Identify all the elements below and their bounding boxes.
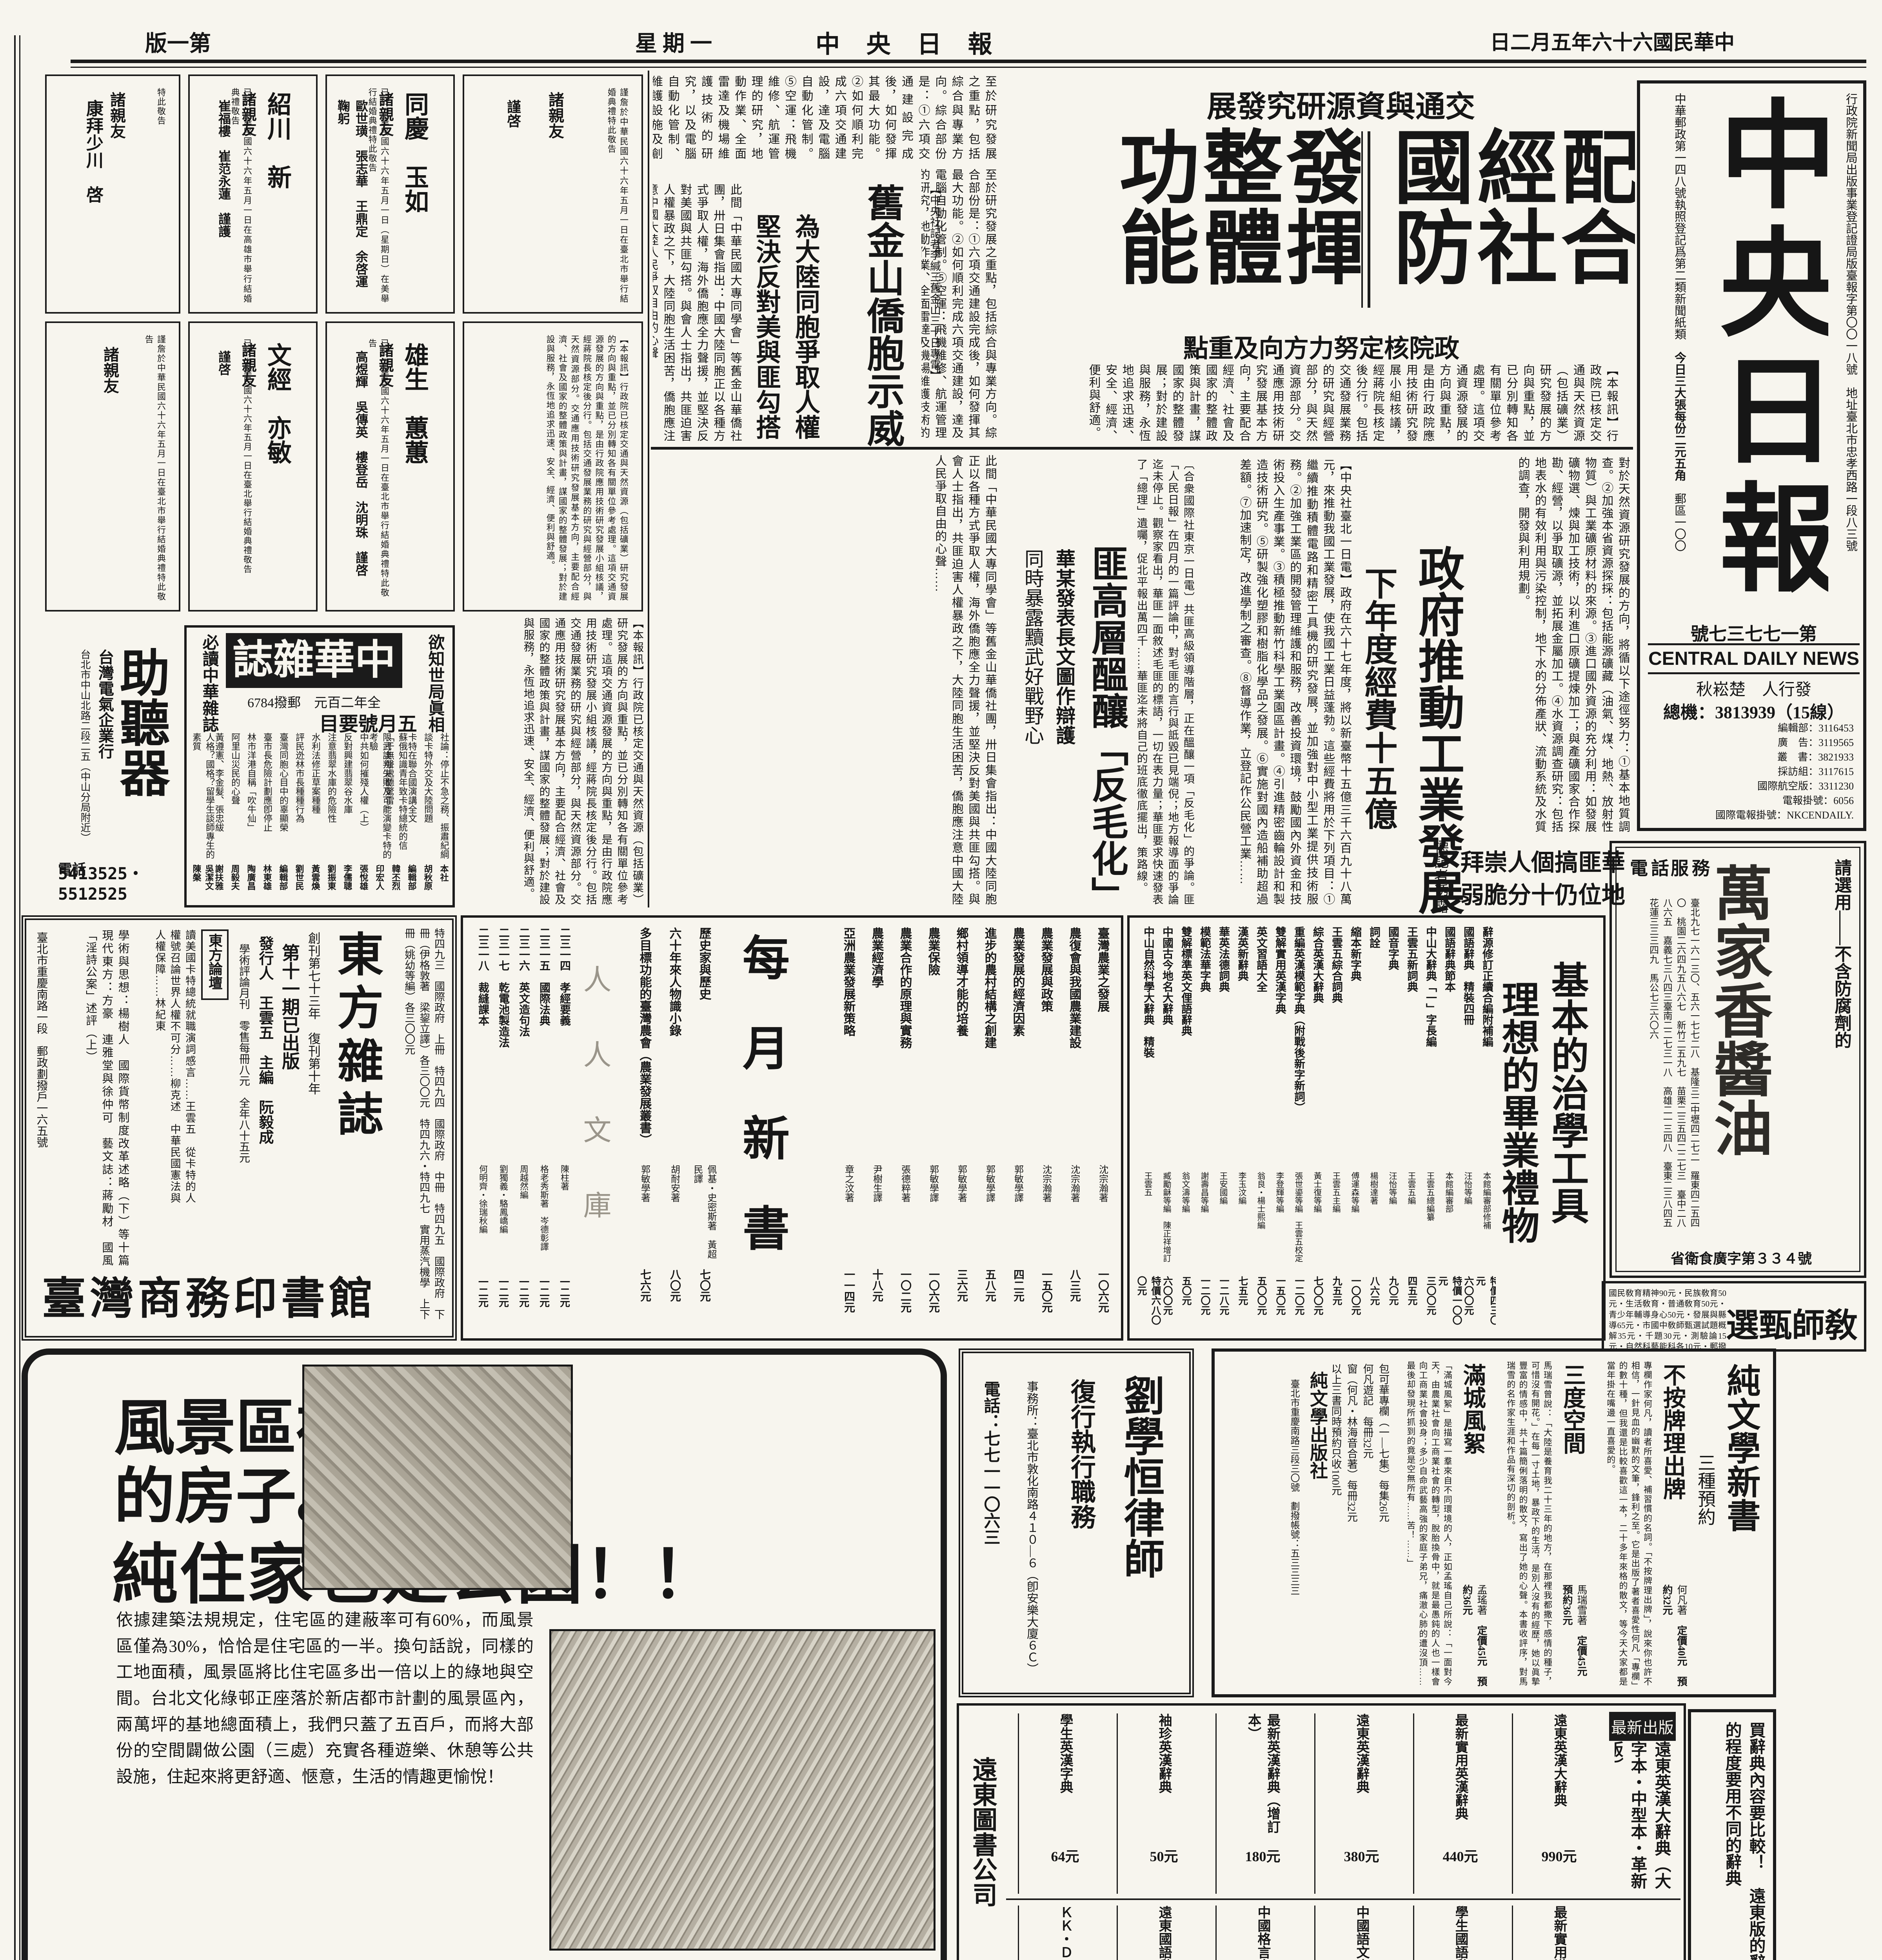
oriental-forum-label: 東方論壇 [201,929,229,1000]
wenku-author: 格老秀斯著 岑德彰譯 [538,1165,550,1274]
book-title: 鄉村領導才能的培養 [953,927,970,1162]
dict-author: 王雲五編 [1406,1172,1417,1274]
dict-title: 雙解標準英文俚語辭典 [1178,926,1194,1169]
fareast-book-title: 最新英漢辭典（增訂本） [1244,1713,1282,1843]
children-photo [302,1365,573,1590]
wenku-price: 一二元 [496,1277,510,1324]
dict-author: 李玉汶編 [1236,1172,1248,1274]
book-author: 沈宗瀚著 [1096,1165,1110,1267]
masthead-english: CENTRAL DAILY NEWS [1644,648,1864,670]
zh-article-title: 社論：停止不急之務、振肅紀綱 [437,733,451,862]
wedding4-detail: 謹詹於中華民國六十六年五月一日在臺北市舉行結婚典禮特此敬告 [571,88,630,303]
zh-article: 黃遵憲、李金髮、張忠紱 謝扶雅 [211,733,226,904]
dict-title: 辭源修訂正續合編附補編 [1479,926,1495,1169]
book-author: 章之汶著 [842,1165,856,1267]
dicts-item-list: 辭源修訂正續合編附補編 本館編審部修補 特價四三〇元 國語辭典 精裝四冊 汪怡等… [1135,926,1496,1330]
dict-item: 重編英漢模範字典（附戰後新字新詞） 張世鎏等編 王雲五校定 一二〇元 [1290,926,1308,1330]
book-item: 六十年來人物識小錄 胡耐安著 八〇元 [661,927,687,1327]
service-entry: 五八六七 新竹二五九七 苗栗二三 [1675,973,1685,1124]
mao-headline: 匪高層醞釀「反毛化」 [1082,545,1133,909]
oriental-title: 東方雜誌 [331,930,389,1181]
dict-title: 英文習語大全 [1253,926,1269,1169]
wedding5-relatives: 諸親友 [374,343,396,460]
mao-kicker-1: 華某發表長文圖作辯護 [1051,549,1078,898]
top-story-headline-left: 發揮整體功能 [1106,125,1361,314]
wenku-title: 二三一六 英文造句法 [516,927,531,1162]
chun-book3-author: 孟瑤著 [1476,1584,1487,1615]
book-title: 六十年來人物識小錄 [666,927,683,1162]
book-item: 農業經濟學 尹樹生譯 十八元 [865,927,889,1327]
fareast-book: 最新實用漢英辭典 430元 [1512,1906,1605,1960]
oriental-forum-list: 讀美國卡特總統就職演詞感言……王雲五 從卡特的人權號召論世界人權不可分……柳克述… [134,929,197,1204]
book-title: 進步的農村結構之創建 [981,927,999,1162]
book-price: 五八元 [982,1269,997,1324]
book-author: 佩基・史密斯著 黃超民譯 [690,1165,717,1267]
masthead-phone-list: 編輯部：3116453廣 告：3119565叢 書：3821933採訪組：311… [1650,721,1854,822]
classified8-text: 【本報訊】行政院已核定交通與天然資源（包括礦業）研究發展的方向與重點，並已分別轉… [477,335,630,601]
book-author: 張德粹著 [898,1165,912,1267]
zh-article-author: 劉振東 [325,864,338,902]
dict-item: 詞詮 楊樹達著 八六元 [1365,926,1383,1330]
dict-item: 華英法德詞典 王安國編 一二八元 [1214,926,1232,1330]
fareast-book-title: 最新實用漢英辭典 [1550,1906,1569,1960]
zh-article-author: 陶廣昌 [245,864,257,902]
book-item: 進步的農村結構之創建 郭敏學譯 五八元 [977,927,1002,1327]
dict-item: 國語辭典節本 本館編審部 特價一〇〇元 [1440,926,1458,1330]
fareast-book: 遠東國語辭典 240元 [1117,1906,1210,1960]
wedding1-name-b: 玉如 [401,165,427,213]
wenku-item: 二三一七 乾電池製造法 劉獨義・駱鳳嶠編 一二元 [494,927,512,1327]
hearing-aid-phone: 5413525・5512525 [58,860,180,904]
dict-price: 九〇元 [1386,1276,1400,1327]
book-item: 農業發展與政策 沈宗瀚著 一五〇元 [1034,927,1058,1327]
lawyer-name: 劉學恒律師 [1111,1375,1170,1681]
dict-item: 王雲五新詞典 王雲五編 四五元 [1402,926,1421,1330]
wedding-box-1: 同慶 玉如 已於中華民國六十六年五月一日（星期日）在美舉行結婚典禮特此敬告 諸親… [325,74,455,314]
zh-article: 水利法修正草案種種 黃雲煥 [308,733,322,904]
dict-price: 一二八元 [1216,1276,1230,1327]
zh-article-title: 林市洋港自稱「吹牛仙」 [244,733,258,862]
wjx-license: 省衛食廣字第３３４號 [1635,1247,1847,1268]
wedding6-name-a: 文經 [263,343,290,391]
zh-article-title: 反對興建翡翠谷水庫 [341,733,354,862]
wenku-item: 二三一五 國際法典 格老秀斯著 岑德彰譯 一二元 [535,927,552,1327]
dict-author: 翁文濤等編 [1180,1172,1192,1274]
lawyer-status: 復行執行職務 [1056,1379,1099,1677]
service-phone-list: 臺北九七一六一三〇、五六一七七二八 基隆三二中壢四二七二 羅東四二五四〇 桃園二… [1618,898,1700,1227]
fareast-book: 遠東英漢辭典 380元 [1314,1713,1408,1894]
dict-item: 國音字典 汪怡等編 九〇元 [1384,926,1402,1330]
zh-article-title: 注意翡翠水庫的危險性 [325,733,338,862]
dict-price: 七五元 [1235,1276,1249,1327]
zh-article-author: 本社 [438,864,450,902]
classified-box-7: 謹詹於中華民國六十六年五月一日在臺北市舉行結婚典禮特此敬告 諸親友 [45,321,180,612]
service-label: 服務 [1671,854,1713,880]
dict-author: 張世鎏等編 王雲五校定 [1293,1172,1304,1274]
dict-price: 一二〇元 [1197,1276,1212,1327]
chun-series-title: 純文學新書 [1718,1363,1765,1685]
lawyer-office: 事務所：臺北市敦化南路４１０—６（卽安樂大廈６Ｃ） [1008,1381,1040,1675]
fareast-book-title: 遠東國語辭典 [1154,1906,1174,1960]
zh-article-author: 編輯部 [405,864,418,902]
dict-title: 王雲五新詞典 [1404,926,1419,1169]
wenku-price: 一二元 [557,1277,572,1324]
teacher-ad-title: 敎師甄選 [1726,1299,1858,1347]
book-item: 歷史家與歷史 佩基・史密斯著 黃超民譯 七〇元 [691,927,717,1327]
wenku-item: 二三一八 裁縫課本 何明齊・徐瑞秋編 一二元 [474,927,491,1327]
book-price: 一〇六元 [1095,1269,1110,1324]
book-price: 三六元 [954,1269,969,1324]
wedding2-signers: 崔福樓 崔范永蓮 謹護 [198,100,233,303]
fareast-new-tag: 最新出版 [1609,1712,1676,1741]
dict-author: 李登輝等編 [1274,1172,1286,1274]
book-author: 郭敏學譯 [926,1165,940,1267]
book-author: 郭敏學譯 [983,1165,997,1267]
monthly-books-box: 臺灣農業之發展 沈宗瀚著 一〇六元 農復會與我國農業建設 沈宗瀚著 八三元 農業… [461,915,1123,1341]
wjx-slogan: 請選用——不含防腐劑的 [1811,859,1854,1157]
dict-author: 汪怡等編 [1462,1172,1474,1274]
dict-author: 王雲五總編纂 [1424,1172,1436,1274]
wedding2-names: 紹川 新 [259,92,294,303]
chun-book1-author: 何凡著 [1676,1584,1687,1615]
industry-body: 【中央社臺北一日電】政府在六十七年度，將以新臺幣十五億三千六百九十八萬元，來推動… [1200,459,1353,906]
newspaper-page: 第一版 星期一 中 央 日 報 中華民國六十六年五月二日 行政院新聞局出版事業登… [0,0,1882,1960]
masthead-price: 今日三大張每份二元五角 [1673,352,1686,481]
chun-address: 臺北市重慶南路三段三〇號 劃撥帳號：五三三三三 [1283,1379,1301,1677]
hearing-aid-store: 台灣電氣企業行 [94,649,116,884]
masthead-box: 行政院新聞局出版事業登記證局版臺報字第〇〇一八號 地址臺北市忠孝西路一段八三號 … [1637,80,1866,831]
fareast-mid-rule [1006,1898,1680,1900]
chun-book3-title: 滿城風絮 [1457,1363,1489,1583]
dict-item: 中國古今地名大辭典 臧勵龢等編 陳正祥增訂 六〇〇元 [1158,926,1176,1330]
book-title: 多目標功能的臺灣農會（農業發展叢書） [636,927,654,1162]
service-entry: 臺北九七一六一三〇、五六一七七二八 基隆三二 [1689,898,1699,1105]
masthead-phone-line: 國際電報掛號：NKCENDAILY. [1650,808,1854,822]
wedding5-name-a: 雄生 [401,343,427,391]
wedding2-name-a: 紹川 [263,92,290,140]
book-title: 農業經濟學 [868,927,886,1162]
top-rule-1 [71,60,1866,63]
dict-title: 雙解實用英漢字典 [1272,926,1288,1169]
dict-title: 中山自然科學大辭典 精裝 [1140,926,1156,1169]
fareast-flagship: 遠東英漢大辭典（大字本・中型本・革新版） [1615,1741,1673,1890]
lawyer-phone: 電話：七七一一〇六三 [975,1381,1003,1675]
fareast-book-price: 380元 [1344,1845,1379,1866]
zh-article: 卡特在聯合國演講全文 編輯部 [404,733,419,904]
wenku-item: 二三一六 英文造句法 周越然編 一二元 [515,927,532,1327]
fareast-book: ＫＫ・ＤＪ音標對照 45元 [1018,1906,1111,1960]
zh-article-author: 胡秋原 [421,864,434,902]
zh-article-list: 社論：停止不急之務、振肅紀綱 本社 談卡特外交及大陸問題 胡秋原 卡特在聯合國演… [192,733,451,904]
fareast-book: 袖珍英漢辭典 50元 [1117,1713,1210,1894]
dict-title: 漢英新辭典 [1234,926,1250,1169]
wenku-price: 一二元 [476,1277,490,1324]
masthead-rule-2 [1648,672,1860,674]
chun-book2-blurb: 馬瑞雪曾說：「大陸是養育我二十三年的地方，在那裡我都撒下感情的種子，可惜沒有開花… [1497,1361,1553,1686]
top-story-headline-right: 配合經社國防 [1380,125,1635,314]
dict-author: 臧勵龢等編 陳正祥增訂 [1161,1172,1173,1274]
dict-item: 綜合英漢大辭典 黃士復等編 七〇〇元 [1308,926,1326,1330]
dict-price: 一〇〇元 [1348,1276,1362,1327]
masthead-postal: 中華郵政第一四八號執照登記爲第二類新聞紙類 [1673,93,1686,340]
book-item: 農業合作的原理與實務 張德粹著 一〇二元 [893,927,917,1327]
book-price: 七六元 [637,1269,652,1324]
dict-price: 一五〇元 [1273,1276,1287,1327]
classified7-relatives: 諸親友 [98,347,121,464]
book-author: 沈宗瀚著 [1068,1165,1081,1267]
book-title: 農業發展的經濟因素 [1009,927,1027,1162]
zh-banner: 中華雜誌 [226,633,402,688]
book-price: 一五〇元 [1038,1269,1054,1324]
wedding6-name-b: 亦敏 [263,416,290,464]
wedding2-relatives: 諸親友 [237,92,258,209]
classified-box-8: 【本報訊】行政院已核定交通與天然資源（包括礦業）研究發展的方向與重點，並已分別轉… [463,321,643,612]
zh-article: 臺灣同胞心目中的辜顯榮 編輯部 [276,733,290,904]
wenku-title: 二三一八 裁縫課本 [475,927,490,1162]
sf-subhead-1: 為大陸同胞爭取人權 [788,214,823,465]
book-price: 七〇元 [696,1269,712,1324]
fareast-book: 最新實用英漢辭典 440元 [1413,1713,1506,1894]
wedding3-relatives: 諸親友 [104,92,128,209]
sf-headline: 舊金山僑胞示威 [843,183,910,458]
dicts-title-2: 理想的畢業禮物 [1497,980,1544,1314]
chunwenxue-box: 純文學新書 三種預約 不按牌理出牌 何凡著 定價40元 預約32元 專欄作家何凡… [1212,1348,1776,1697]
mao-kicker-2: 同時暴露黷武好戰野心 [1021,549,1047,898]
dict-item: 雙解標準英文俚語辭典 翁文濤等編 五〇元 [1177,926,1195,1330]
fareast-book: 最新英漢辭典（增訂本） 180元 [1215,1713,1309,1894]
chun-book2-meta: 馬瑞雪著 定價45元 預約36元 [1557,1584,1589,1686]
teacher-ad: 敎師甄選 國民敎育精神90元・民族敎育50元・生活敎育・普通敎育50元・青少年輔… [1602,1281,1866,1352]
wedding4-relatives: 諸親友 [543,92,566,209]
dict-item: 雙解實用英漢字典 李登輝等編 一五〇元 [1271,926,1289,1330]
wedding3-detail: 特此敬告 [144,88,167,303]
wenku-price: 一二元 [537,1277,551,1324]
shangwu-name: 臺灣商務印書館 [42,1263,387,1327]
fareast-book-title: 遠東英漢大辭典 [1550,1713,1569,1843]
shangwu-tejia-list: 特四九三 國際政府 上冊 特四九四 國際政府 中冊 特四九五 國際政府 下冊（伊… [399,928,446,1324]
fareast-book-price: 180元 [1245,1845,1280,1866]
dict-title: 中山大辭典「一」字長編 [1422,926,1438,1169]
book-price: 四二元 [1010,1269,1026,1324]
wedding5-name-b: 蕙蕙 [401,416,427,464]
hua-headline-1: 華匪搞個人崇拜 [1455,844,1631,878]
book-title: 歷史家與歷史 [696,927,713,1162]
dict-item: 王雲五綜合詞典 王雲五主編 九五元 [1327,926,1345,1330]
monthly-items-right: 臺灣農業之發展 沈宗瀚著 一〇六元 農復會與我國農業建設 沈宗瀚著 八三元 農業… [809,927,1115,1327]
book-item: 鄉村領導才能的培養 郭敏學著 三六元 [949,927,974,1327]
book-author: 郭敏學著 [638,1165,652,1267]
sf-subhead-2: 堅決反對美與匪勾搭 [749,214,784,465]
book-price: 十八元 [869,1269,885,1324]
paper-name-small: 中 央 日 報 [816,24,1003,60]
wenku-author: 劉獨義・駱鳳嶠編 [497,1165,509,1274]
dict-author: 王雲五 [1142,1172,1154,1274]
classified7-text: 謹詹於中華民國六十六年五月一日在臺北市舉行結婚典禮特此敬告 [120,335,167,601]
chun-offer: 包可華專欄（一—七集）每集26元 [1375,1363,1392,1685]
dict-price: 五〇〇元 [1254,1276,1268,1327]
wedding6-names: 文經 亦敏 [259,343,294,593]
wedding6-relatives: 諸親友 [237,343,258,460]
book-title: 亞洲農業發展新策略 [840,927,857,1162]
wjx-brand: 萬家香醬油 [1706,863,1780,1231]
chun-series-sub: 三種預約 [1695,1454,1718,1595]
book-item: 亞洲農業發展新策略 章之汶著 一一四元 [836,927,861,1327]
lawyer-notice: 劉學恒律師 復行執行職務 事務所：臺北市敦化南路４１０—６（卽安樂大廈６Ｃ） 電… [959,1348,1194,1697]
zhonghua-magazine-ad: 欲知世局眞相 中華雜誌 必讀中華雜誌 全年二百元 郵撥4876 五月號要目 社論… [184,625,455,907]
top-story-body-1: 【本報訊】行政院已核定交通與天然資源（包括礦業）研究發展的方向與重點，並已分別轉… [1008,364,1619,442]
dict-price: 四五元 [1404,1276,1419,1327]
oriental-type: 學術評論月刊 零售每冊八元 全年八十五元 [234,944,251,1171]
book-item: 農業保險 郭敏學譯 一〇六元 [921,927,945,1327]
dict-title: 縮本新字典 [1347,926,1363,1169]
zh-article-author: 周毅夫 [229,864,241,902]
zh-article: 反對興建翡翠谷水庫 李儒聰 [340,733,354,904]
zh-article-title: 評民迯林市長種種行為 [292,733,306,862]
masthead-rule-1 [1648,643,1860,645]
wedding-box-6: 文經 亦敏 已於中華民國六十六年五月一日在臺北舉行結婚典禮敬告 諸親友 謹啓 [188,321,318,612]
zh-article-author: 印宏人 [373,864,386,902]
book-author: 胡耐安著 [668,1165,681,1267]
teacher-ad-body: 國民敎育精神90元・民族敎育50元・生活敎育・普通敎育50元・青少年輔導身心50… [1609,1288,1726,1349]
dict-title: 重編英漢模範字典（附戰後新字新詞） [1291,926,1306,1169]
industry-subhead: 下年度經費十五億 [1359,566,1402,911]
zh-article-author: 黃雲煥 [309,864,322,902]
fareast-book: 中國格言大辭典 290元 [1215,1906,1309,1960]
zh-article-author: 編輯部 [277,864,289,902]
oriental-publisher: 發行人 王雲五 主編 阮毅成 [254,936,276,1171]
hua-headline-2: 地位仍十分脆弱 [1455,876,1631,910]
wedding-box-3: 特此敬告 諸親友 康拜少川 啓 [45,74,180,314]
dict-title: 詞詮 [1366,926,1382,1169]
wenku-items: 二三一四 孝經要義 陳柱著 一二元 二三一五 國際法典 格老秀斯著 岑德彰譯 一… [471,927,573,1327]
headline-divider [1368,131,1370,308]
zh-article: 評民迯林市長種種行為 劉世民 [292,733,306,904]
masthead-issue: 第一七七三七號 [1648,620,1860,646]
zh-article-title: 談卡特外交及大陸問題 [421,733,434,862]
fareast-book: 學生國語辭典 98元 [1413,1906,1506,1960]
masthead-publisher: 發行人 楚崧秋 [1648,676,1860,700]
fareast-book-price: 50元 [1150,1845,1178,1866]
fareast-book-title: 遠東英漢辭典 [1352,1713,1371,1843]
dict-price: 特價四三〇元 [1473,1276,1496,1327]
wenku-title: 二三一四 孝經要義 [556,927,572,1162]
hearing-aid-ad: 助聽器 台灣電氣企業行 台北市中山北路二段二五（中山分局附近） 電話 54135… [55,643,180,907]
dict-title: 中國古今地名大辭典 [1159,926,1175,1169]
service-entry: 臺南二二七三一八 高雄二一三四八 臺東二三 [1661,1002,1671,1199]
fareast-row-2: 最新實用漢英辭典 430元 學生國語辭典 98元 中國語文大辭典 313元 中國… [1001,1906,1605,1960]
oriental-info: 創刊第七十三年 復刊第十年 [305,932,323,1175]
fareast-book-title: 中國格言大辭典 [1253,1906,1272,1960]
book-price: 一一四元 [841,1269,856,1324]
dict-author: 本館編審部修補 [1481,1172,1493,1274]
fareast-row-1: 遠東英漢大辭典 990元 最新實用英漢辭典 440元 遠東英漢辭典 380元 最… [1001,1713,1605,1894]
fareast-book-price: 64元 [1051,1845,1079,1866]
dict-author: 汪怡等編 [1387,1172,1399,1274]
dict-author: 王雲五主編 [1330,1172,1342,1274]
masthead-title: 中央日報 [1691,94,1828,615]
resource-items-body: 對於天然資源研究發展的方向，將循以下途徑努力：①基本地質調查。②加強本省資源探採… [1478,457,1631,833]
dict-price: 一二〇元 [1292,1276,1306,1327]
wedding5-signers: 高煜輝 吳傳英 樓登岳 沈明珠 謹啓 [335,350,370,601]
fareast-box: 遠東圖書公司 最新出版 遠東英漢大辭典（大字本・中型本・革新版） 遠東英漢大辭典… [957,1703,1686,1960]
fareast-book-title: 袖珍英漢辭典 [1154,1713,1174,1843]
news-col-rule [648,71,649,907]
top-story-body-2: 至於研究發展之重點，包括綜合與專業方向。綜合部份是：①六項交通建設完成後，如何發… [653,75,998,160]
masthead-registration: 行政院新聞局出版事業登記證局版臺報字第〇〇一八號 地址臺北市忠孝西路一段八三號 [1825,93,1858,595]
book-price: 一〇二元 [897,1269,913,1324]
wenku-price: 一二元 [516,1277,531,1324]
fareast-book-title: 學生國語辭典 [1451,1906,1470,1960]
dict-author: 謝壽昌等編 [1199,1172,1210,1274]
buy-dict-box: 買辭典內容要比較！ 遠東版的辭典最好！ 不同的程度要用不同的辭典 [1688,1709,1776,1960]
wanjiaxiang-ad: 請選用——不含防腐劑的 萬家香醬油 服務 電話 臺北九七一六一三〇、五六一七七二… [1610,841,1866,1278]
dict-item: 縮本新字典 傅運森等編 一〇〇元 [1346,926,1364,1330]
zh-article: 林市洋港自稱「吹牛仙」 陶廣昌 [243,733,258,904]
book-title: 農業發展與政策 [1037,927,1055,1162]
zh-article-author: 張悅雄 [357,864,370,902]
wedding-box-4: 謹詹於中華民國六十六年五月一日在臺北市舉行結婚典禮特此敬告 諸親友 謹啓 [463,74,643,314]
dict-item: 英文習語大全 翁良・楊士熙編 五〇〇元 [1252,926,1270,1330]
dict-title: 王雲五綜合詞典 [1328,926,1344,1169]
book-item: 多目標功能的臺灣農會（農業發展叢書） 郭敏學著 七六元 [632,927,658,1327]
wedding1-relatives: 諸親友 [374,92,396,209]
book-item: 農復會與我國農業建設 沈宗瀚著 八三元 [1062,927,1086,1327]
wjx-lead: 請選用—— [1832,859,1851,945]
chun-offer: 以上三書同時預約只收100元 [1332,1363,1344,1685]
wjx-lead2: 不含防腐劑的 [1832,945,1851,1049]
book-title: 農業保險 [925,927,942,1162]
zh-article: 談卡特外交及大陸問題 胡秋原 [420,733,435,904]
fareast-book-price: 990元 [1541,1845,1577,1866]
masthead-phone-line: 電報掛號：6056 [1650,793,1854,808]
zh-article-title: 黃遵憲、李金髮、張忠紱 [212,733,225,862]
book-title: 臺灣農業之發展 [1094,927,1112,1162]
fareast-book-title: ＫＫ・ＤＪ音標對照 [1055,1906,1075,1960]
oriental-issue: 第十一期已出版 [279,944,302,1163]
wenku-title: 二三一五 國際法典 [536,927,552,1162]
wedding-box-2: 紹川 新 已於中華民國六十六年五月一日在高雄市舉行結婚典禮敬告 諸親友 崔福樓 … [188,74,318,314]
book-title: 農業合作的原理與實務 [896,927,914,1162]
wenku-title: 二三一七 乾電池製造法 [495,927,511,1162]
masthead-postal-info: 中華郵政第一四八號執照登記爲第二類新聞紙類 今日三大張每份二元五角 郵區一〇〇 [1644,93,1686,595]
wedding1-signers: 歐世璜 張志華 王鼎定 余啓運 鞠躬 [335,100,370,303]
fareast-company: 遠東圖書公司 [965,1757,1001,1960]
dicts-title-1: 基本的治學工具 [1547,961,1594,1294]
hearing-aid-address: 台北市中山北路二段二五（中山分局附近） [76,649,92,892]
wedding4-signers: 謹啓 [480,100,523,303]
dict-item: 模範法華字典 謝壽昌等編 一二〇元 [1195,926,1213,1330]
wedding6-signers: 謹啓 [198,350,233,601]
book-item: 農業發展的經濟因素 郭敏學譯 四二元 [1006,927,1030,1327]
dict-item: 中山大辭典「一」字長編 王雲五總編纂 三〇〇元 [1421,926,1439,1330]
dict-item: 中山自然科學大辭典 精裝 王雲五 特價六八〇〇元 [1139,926,1157,1330]
fareast-book-title: 學生英漢字典 [1055,1713,1075,1843]
dict-title: 模範法華字典 [1197,926,1212,1169]
fareast-book-price: 440元 [1442,1845,1478,1866]
masthead-phone-line: 廣 告：3119565 [1650,735,1854,750]
masthead-phone-line: 國際航空版：3311230 [1650,779,1854,793]
zh-article-title: 臺市長危險計劃應卽停止 [260,733,274,862]
wedding-box-5: 雄生 蕙蕙 已於中華民國六十六年五月一日在臺北市舉行結婚典禮特此敬告 諸親友 高… [325,321,455,612]
phone-label: 電話 [1630,854,1672,880]
chun-offer: 窗（何凡・林海音合著）每冊32元 [1344,1363,1360,1685]
dict-author: 楊樹達著 [1368,1172,1380,1274]
monthly-title: 每月新書 [733,933,796,1325]
masthead-reg-text: 行政院新聞局出版事業登記證局版臺報字第〇〇一八號 [1844,93,1857,375]
masthead-phone-line: 叢 書：3821933 [1650,750,1854,764]
masthead-phone-line: 採訪組：3117615 [1650,764,1854,779]
dict-price: 七〇〇元 [1310,1276,1324,1327]
